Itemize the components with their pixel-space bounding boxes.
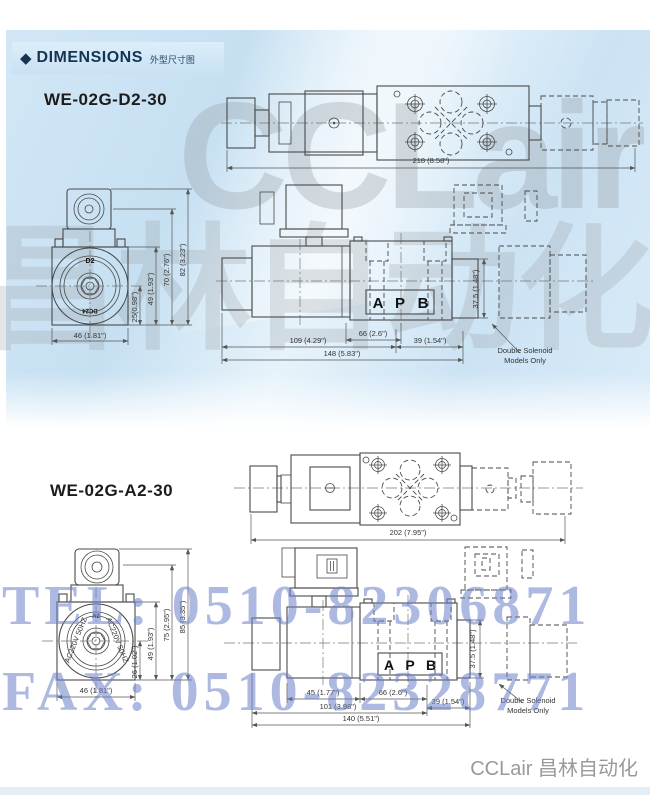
dim-37-5: 37.5 (1.48") bbox=[471, 269, 480, 308]
watermark-tel: TEL: 0510-82306871 bbox=[2, 574, 591, 638]
model2-top-view-drawing: 202 (7.95") bbox=[238, 430, 588, 550]
dim-218: 218 (8.58") bbox=[413, 156, 450, 165]
side-label-d2: D2 bbox=[86, 258, 95, 265]
dim-39: 39 (1.54") bbox=[414, 336, 447, 345]
dimensions-header: ◆ DIMENSIONS 外型尺寸图 bbox=[12, 42, 224, 74]
side-dims: 25(0.98") 49 (1.93") 70 (2.76") 82 (3.23… bbox=[52, 189, 192, 345]
note-line2: Models Only bbox=[504, 356, 546, 365]
dim-66: 66 (2.6") bbox=[359, 329, 388, 338]
dim-25: 25(0.98") bbox=[130, 291, 139, 322]
solenoid-left-2 bbox=[250, 455, 360, 523]
diamond-icon: ◆ bbox=[20, 49, 32, 67]
datasheet-page: { "header": { "diamond": "◆", "title": "… bbox=[0, 0, 650, 795]
dim-148: 148 (5.83") bbox=[324, 349, 361, 358]
note-line1: Double Solenoid bbox=[497, 346, 552, 355]
port-a-label: A bbox=[373, 295, 384, 312]
front-valve-body: A P B bbox=[350, 237, 478, 320]
side-label-dc24: DC24 bbox=[82, 307, 98, 313]
front-solenoid-left bbox=[222, 185, 350, 317]
dim-109: 109 (4.29") bbox=[290, 336, 327, 345]
valve-body-top-2 bbox=[360, 453, 460, 525]
front-dims: 66 (2.6") 109 (4.29") 39 (1.54") 148 (5.… bbox=[222, 313, 463, 364]
double-solenoid-note: Double Solenoid Models Only bbox=[492, 324, 553, 365]
header-subtitle: 外型尺寸图 bbox=[150, 53, 195, 66]
model2-title: WE-02G-A2-30 bbox=[50, 481, 173, 501]
model1-front-view-drawing: A P B 37.5 (1.48") 66 (2.6") 109 (4.29")… bbox=[220, 183, 650, 375]
model1-title: WE-02G-D2-30 bbox=[44, 90, 167, 110]
model1-top-view-drawing: 218 (8.58") bbox=[225, 58, 645, 178]
dim-49: 49 (1.93") bbox=[146, 272, 155, 305]
dim-46: 46 (1.81") bbox=[74, 331, 107, 340]
dim-202: 202 (7.95") bbox=[390, 528, 427, 537]
model1-side-view-drawing: D2 DC24 25(0.98") 49 (1.93") 70 (2.76") … bbox=[30, 175, 225, 355]
bottom-edge-strip bbox=[0, 787, 650, 795]
watermark-fax: FAX: 0510-82328771 bbox=[2, 660, 590, 724]
dim-375-group: 37.5 (1.48") bbox=[466, 259, 488, 318]
header-title: DIMENSIONS bbox=[37, 49, 143, 67]
dim-70: 70 (2.76") bbox=[162, 253, 171, 286]
dim-82: 82 (3.23") bbox=[178, 243, 187, 276]
side-body: D2 DC24 bbox=[36, 189, 144, 343]
footer-brand: CCLair 昌林自动化 bbox=[470, 752, 638, 781]
port-b-label: B bbox=[418, 295, 429, 312]
port-p-label: P bbox=[395, 295, 405, 312]
dim-202-group: 202 (7.95") bbox=[251, 514, 565, 544]
